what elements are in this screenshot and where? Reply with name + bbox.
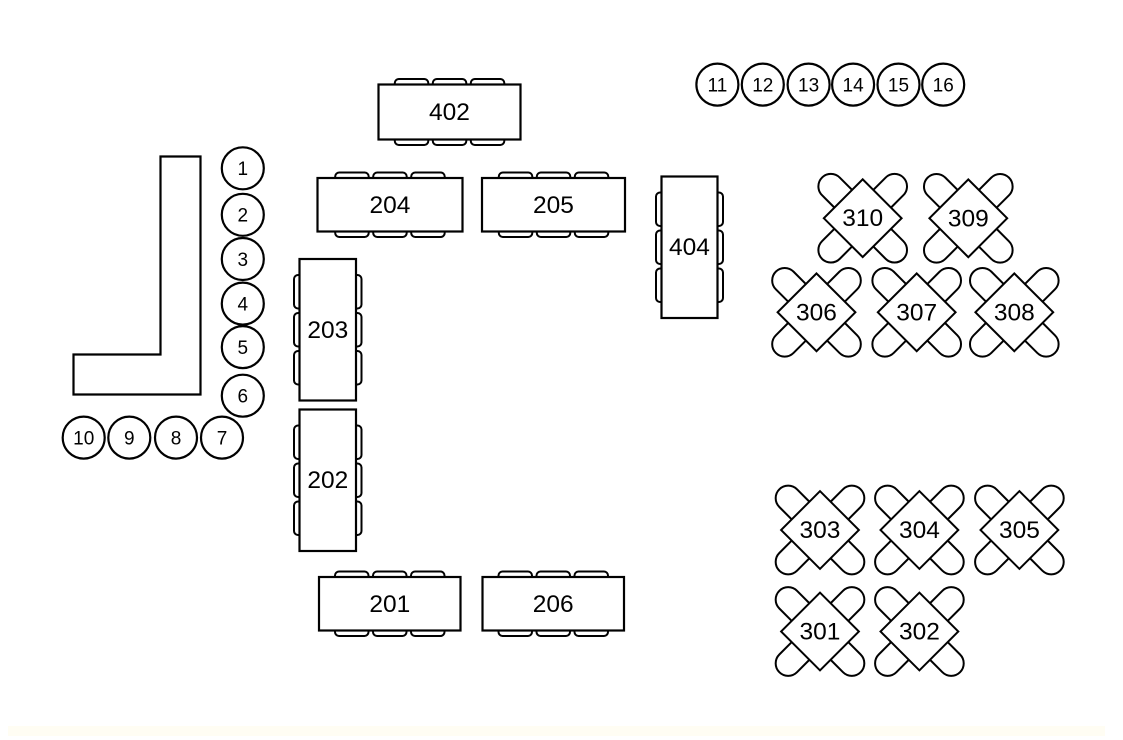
svg-text:404: 404 (669, 234, 710, 261)
svg-text:2: 2 (238, 206, 249, 227)
svg-text:309: 309 (948, 205, 989, 232)
svg-text:310: 310 (842, 205, 883, 232)
svg-text:304: 304 (899, 517, 940, 544)
svg-text:16: 16 (933, 75, 954, 96)
svg-text:3: 3 (238, 250, 249, 271)
svg-text:402: 402 (429, 99, 470, 126)
svg-text:302: 302 (899, 618, 940, 645)
svg-text:306: 306 (796, 299, 837, 326)
svg-text:15: 15 (888, 75, 909, 96)
svg-text:204: 204 (370, 192, 411, 219)
svg-text:205: 205 (533, 192, 574, 219)
svg-text:5: 5 (238, 338, 249, 359)
svg-text:8: 8 (171, 428, 182, 449)
svg-text:308: 308 (994, 299, 1035, 326)
svg-text:6: 6 (238, 387, 249, 408)
svg-text:13: 13 (798, 75, 819, 96)
svg-text:1: 1 (238, 159, 249, 180)
svg-text:307: 307 (896, 299, 937, 326)
svg-text:301: 301 (800, 618, 841, 645)
svg-text:4: 4 (238, 294, 249, 315)
svg-text:7: 7 (217, 428, 228, 449)
svg-text:203: 203 (307, 317, 348, 344)
svg-text:9: 9 (124, 428, 135, 449)
svg-text:303: 303 (800, 517, 841, 544)
svg-text:202: 202 (307, 467, 348, 494)
svg-text:12: 12 (752, 75, 773, 96)
svg-text:10: 10 (73, 428, 94, 449)
svg-text:305: 305 (999, 517, 1040, 544)
svg-text:11: 11 (708, 75, 728, 96)
svg-text:206: 206 (533, 591, 574, 618)
svg-text:201: 201 (369, 591, 410, 618)
svg-text:14: 14 (843, 75, 865, 96)
